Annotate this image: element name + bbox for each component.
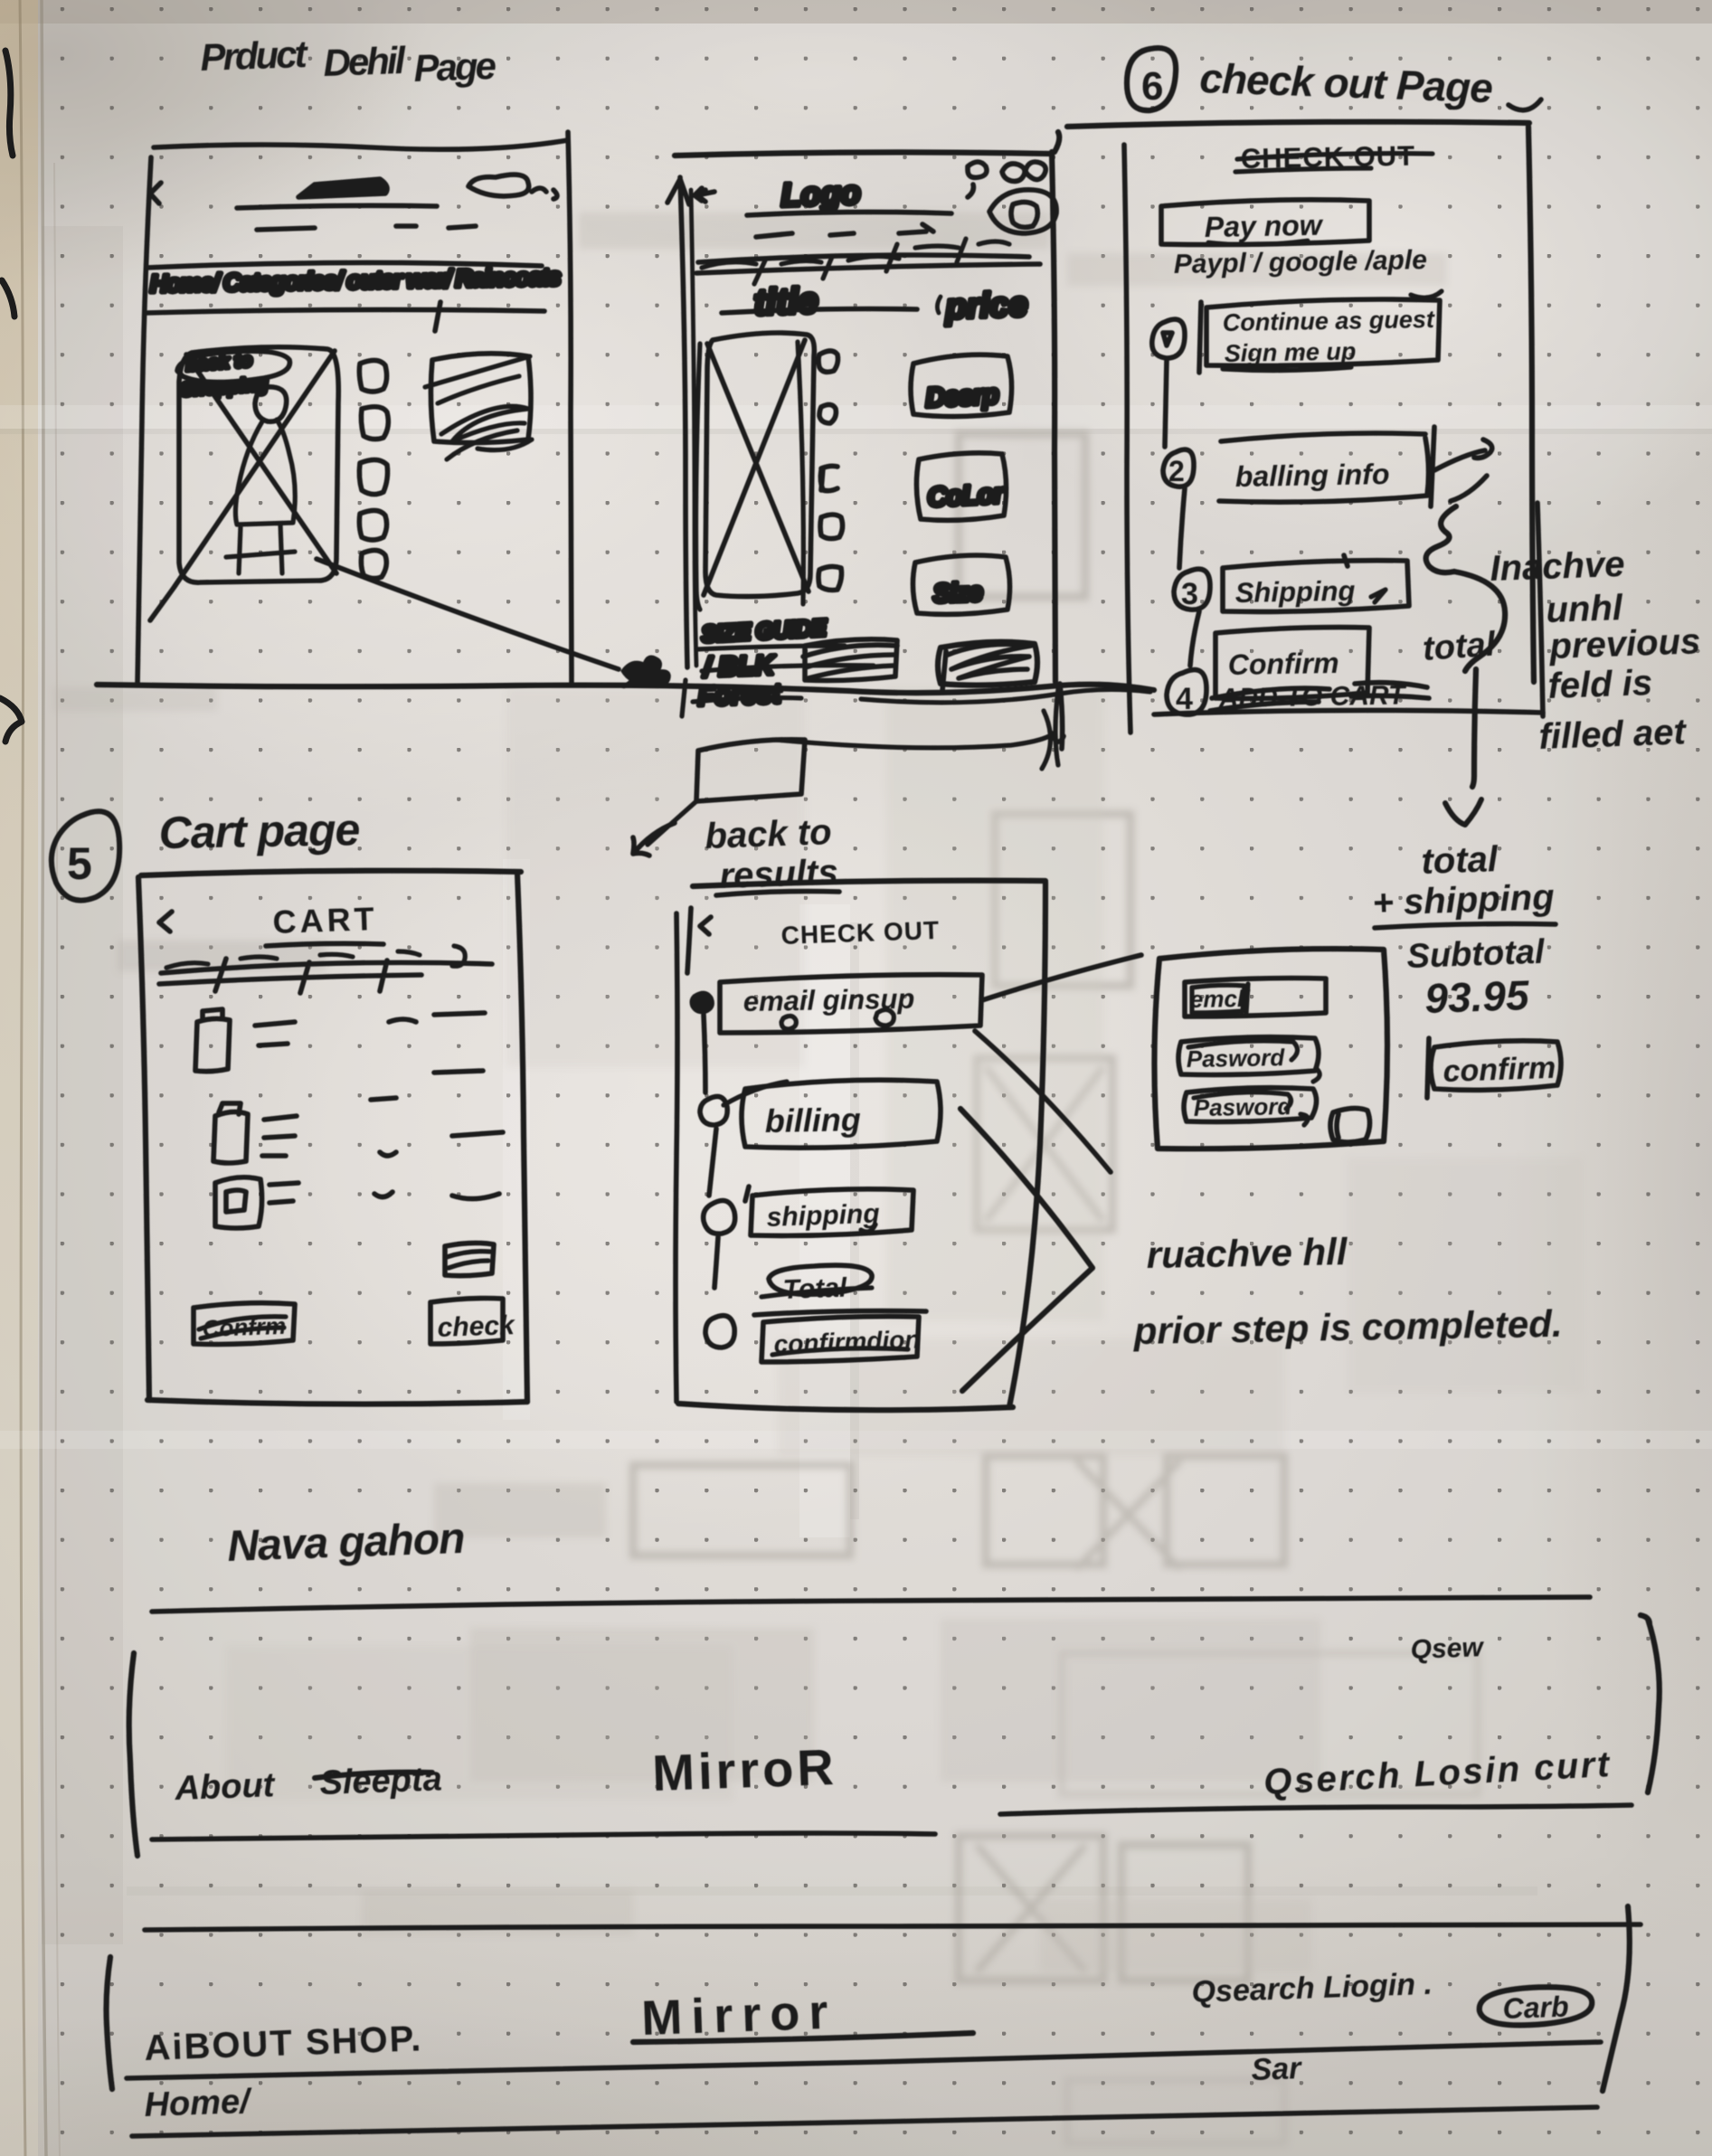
svg-text:Logo: Logo (780, 174, 861, 213)
svg-text:previous: previous (1548, 621, 1701, 667)
svg-text:CART: CART (272, 900, 378, 941)
svg-text:balling info: balling info (1234, 458, 1389, 493)
svg-text:total: total (1422, 625, 1498, 668)
svg-text:ruachve hll: ruachve hll (1146, 1230, 1348, 1276)
svg-text:+ shipping: + shipping (1372, 877, 1556, 923)
svg-text:93.95: 93.95 (1424, 971, 1531, 1022)
svg-text:Sleepta: Sleepta (319, 1760, 443, 1802)
svg-text:Continue as guest: Continue as guest (1223, 306, 1436, 336)
svg-text:CHECK OUT: CHECK OUT (780, 916, 940, 950)
svg-text:Pasword: Pasword (1187, 1044, 1286, 1073)
svg-text:price: price (944, 286, 1028, 326)
svg-text:About: About (174, 1766, 276, 1808)
svg-text:billing: billing (764, 1101, 861, 1139)
svg-text:6: 6 (1141, 64, 1163, 109)
svg-text:Inachve: Inachve (1490, 544, 1625, 589)
svg-text:Sign me up: Sign me up (1225, 337, 1357, 367)
svg-text:total: total (1421, 839, 1499, 882)
svg-text:check: check (437, 1310, 515, 1343)
svg-text:shipping: shipping (766, 1199, 880, 1233)
svg-text:3: 3 (1181, 577, 1198, 611)
svg-text:Home/: Home/ (144, 2083, 253, 2124)
svg-text:Carb: Carb (1502, 1990, 1569, 2025)
svg-text:Paypl / google /aple: Paypl / google /aple (1174, 245, 1428, 279)
svg-text:Qsew: Qsew (1410, 1632, 1485, 1665)
svg-text:Confrm: Confrm (202, 1312, 286, 1342)
svg-text:Prduct: Prduct (200, 33, 310, 79)
svg-text:back to: back to (705, 812, 832, 856)
svg-text:filled aet: filled aet (1538, 712, 1688, 757)
svg-text:2: 2 (1168, 455, 1185, 487)
svg-text:Dehil: Dehil (323, 39, 408, 84)
svg-text:Shipping: Shipping (1235, 575, 1356, 609)
svg-text:Page: Page (413, 44, 497, 90)
svg-text:Forest: Forest (697, 679, 783, 712)
svg-text:CoLor: CoLor (927, 479, 1007, 513)
svg-text:prior step is completed.: prior step is completed. (1132, 1302, 1563, 1352)
svg-text:Pay now: Pay now (1204, 209, 1324, 243)
svg-text:Sar: Sar (1251, 2051, 1303, 2087)
svg-text:Desrp: Desrp (925, 380, 999, 413)
svg-text:feld is: feld is (1547, 663, 1653, 706)
svg-text:Subtotal: Subtotal (1406, 933, 1546, 976)
svg-text:Nava gahon: Nava gahon (227, 1515, 466, 1571)
svg-text:confirm: confirm (1442, 1051, 1556, 1089)
svg-text:Size: Size (932, 578, 983, 609)
svg-text:title: title (753, 281, 819, 323)
svg-text:5: 5 (67, 838, 92, 889)
svg-text:Confirm: Confirm (1227, 647, 1338, 681)
svg-text:Cart page: Cart page (158, 804, 360, 858)
svg-text:MirroR: MirroR (651, 1738, 838, 1801)
